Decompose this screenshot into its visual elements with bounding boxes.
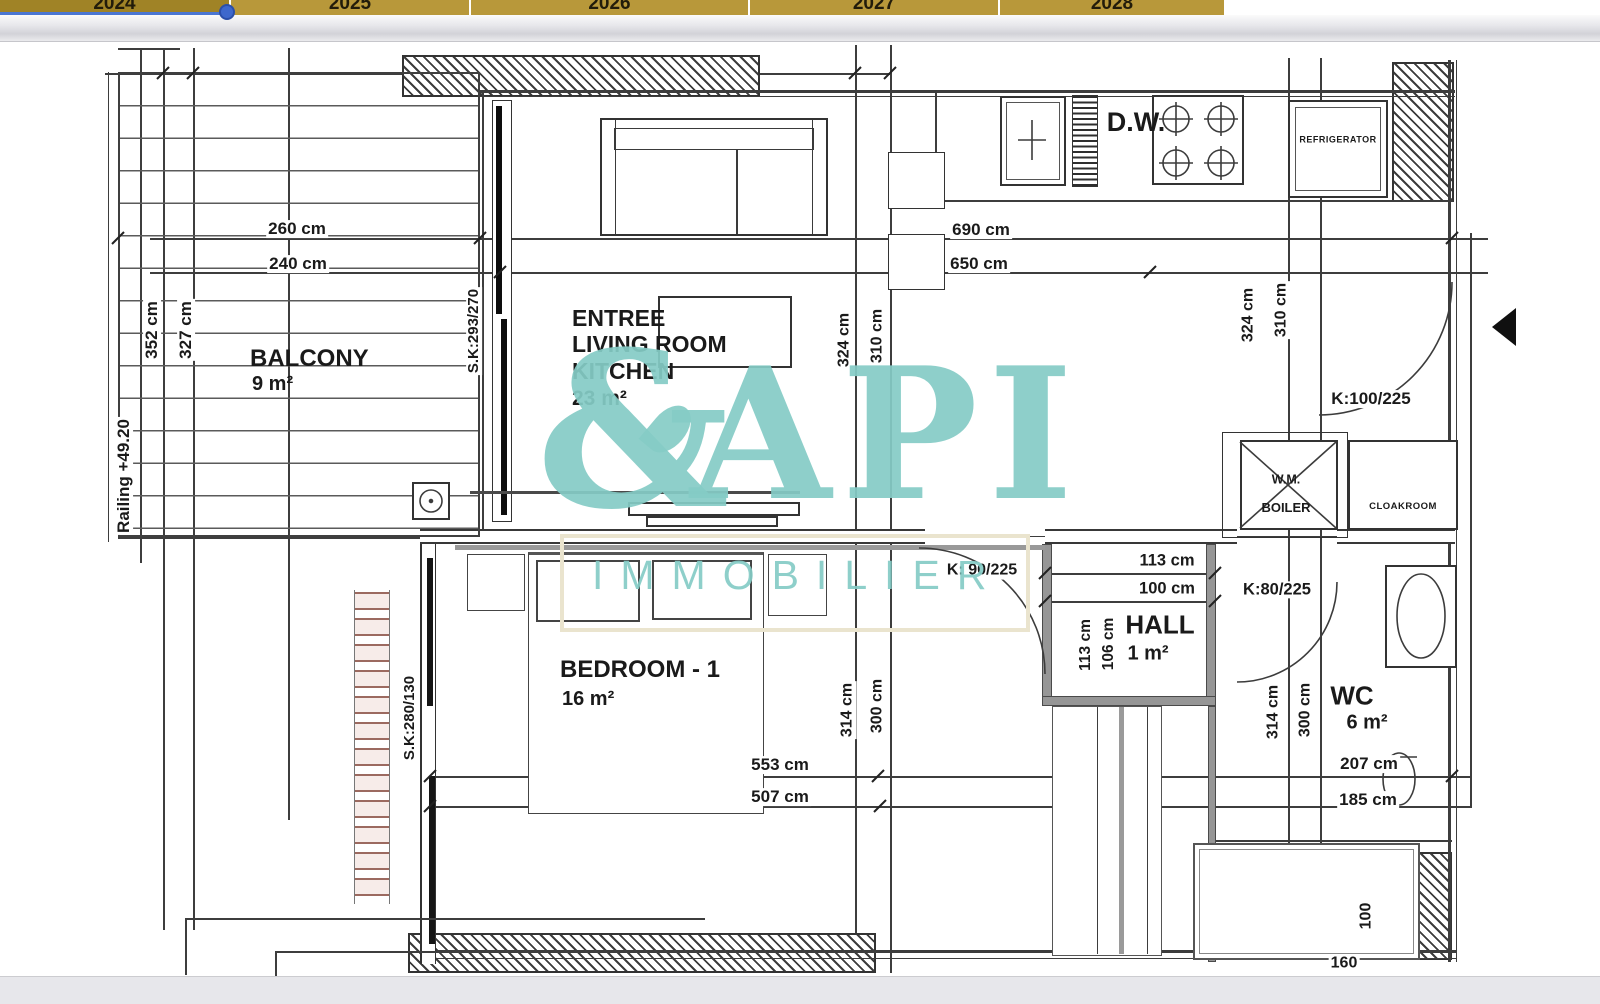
dim-living-right-outer: 324 cm	[1241, 286, 1258, 344]
boundary-step	[185, 918, 705, 920]
wall-top	[480, 90, 1455, 93]
dim-hall-depth-inner: 106 cm	[1101, 616, 1117, 673]
dim-bedroom-depth-inner: 300 cm	[870, 677, 887, 735]
timeline-progress-line	[0, 12, 228, 15]
shaft-line	[1147, 707, 1148, 954]
boiler-label: BOILER	[1261, 501, 1310, 515]
dim-wc-depth-inner: 300 cm	[1298, 681, 1315, 739]
dim-balcony-depth-inner: 327 cm	[177, 299, 195, 361]
sofa	[600, 118, 828, 236]
hall-wall-right	[1206, 544, 1216, 706]
refrigerator-label: REFRIGERATOR	[1299, 135, 1376, 144]
tab-year-2026[interactable]: 2026	[471, 0, 748, 15]
kitchen-sink	[1000, 96, 1066, 186]
wc-shower-divider	[1216, 840, 1452, 842]
room-label-wc: WC	[1330, 682, 1373, 709]
balcony-bottom-edge	[118, 537, 420, 539]
dim-shower-depth: 100	[1359, 901, 1376, 932]
dim-bedroom-width-outer: 553 cm	[749, 756, 811, 774]
watermark-logo-text: API	[690, 362, 1083, 508]
shaft-line	[1097, 707, 1098, 954]
room-area-wc: 6 m²	[1346, 713, 1387, 734]
dim-balcony-inner: 240 cm	[267, 255, 329, 273]
room-area-hall: 1 m²	[1127, 644, 1168, 665]
railing-level-label: Railing +49.20	[115, 417, 133, 535]
dim-bedroom-depth-outer: 314 cm	[840, 681, 857, 739]
hall-wall-bottom	[1042, 696, 1216, 706]
nightstand	[467, 554, 525, 611]
wall-divider-right	[1337, 529, 1455, 544]
dim-balcony-outer: 260 cm	[266, 220, 328, 238]
dim-shower-width: 160	[1329, 956, 1360, 973]
dim-line	[1045, 601, 1215, 603]
dim-hall-width-outer: 113 cm	[1137, 552, 1196, 569]
dim-line	[1470, 233, 1472, 808]
wc-sink-cabinet	[1385, 565, 1457, 668]
sofa-back	[614, 128, 814, 150]
duct-shaft	[1052, 706, 1162, 956]
balcony-drain	[412, 482, 450, 520]
radiator	[354, 590, 390, 904]
boundary-step	[275, 951, 277, 976]
sofa-seat-split	[736, 150, 738, 234]
wall-balcony-living	[482, 90, 484, 537]
balcony-railing	[108, 72, 109, 542]
shaft-gray-line	[1119, 707, 1124, 954]
floorplan-page: { "timeline": { "years": ["2024", "2025"…	[0, 0, 1600, 1003]
room-area-balcony: 9 m²	[252, 374, 293, 396]
dim-kitchen-outer: 690 cm	[950, 221, 1012, 239]
dim-line	[1045, 573, 1215, 575]
balcony-deck	[118, 72, 480, 537]
sofa-arm-left	[602, 120, 616, 234]
tab-year-2025[interactable]: 2025	[231, 0, 469, 15]
dim-kitchen-inner: 650 cm	[948, 255, 1010, 273]
dim-line	[118, 48, 180, 50]
bottom-status-strip	[0, 976, 1600, 1004]
tab-year-2027[interactable]: 2027	[750, 0, 998, 15]
room-area-bedroom: 16 m²	[562, 689, 614, 711]
tab-year-2028[interactable]: 2028	[1000, 0, 1224, 15]
boundary-step	[275, 951, 803, 953]
dim-balcony-depth-outer: 352 cm	[143, 299, 161, 361]
refrigerator	[1288, 100, 1388, 198]
wall-top-inner	[480, 96, 1455, 97]
wall-hatched-top-right	[1392, 62, 1454, 202]
kitchen-counter-edge	[935, 200, 1453, 202]
boundary-step	[185, 918, 187, 975]
cloakroom-box	[1348, 440, 1458, 530]
sink-inner	[1006, 102, 1060, 180]
timeline-slider-handle[interactable]	[219, 4, 235, 20]
refrigerator-inner	[1295, 107, 1381, 191]
wc-door-label: K:80/225	[1241, 581, 1313, 598]
room-label-bedroom: BEDROOM - 1	[560, 657, 720, 683]
washing-machine-label: W.M.	[1272, 473, 1300, 486]
hall-wall-left	[1042, 544, 1052, 706]
sofa-arm-right	[812, 120, 826, 234]
balcony-slider-label: S.K:293/270	[466, 287, 482, 375]
bedroom-window-glass	[427, 558, 433, 706]
room-label-balcony: BALCONY	[250, 346, 369, 372]
dishwasher-hatch	[1072, 95, 1098, 187]
dim-hall-width-inner: 100 cm	[1137, 580, 1197, 597]
kitchen-cabinet	[888, 234, 945, 290]
cloakroom-label: CLOAKROOM	[1369, 502, 1437, 512]
entry-door-label: K:100/225	[1329, 390, 1412, 408]
wall-hatched-bottom	[408, 933, 876, 973]
shower	[1193, 843, 1420, 960]
sliding-door-frame	[492, 100, 512, 522]
kitchen-cabinet	[888, 152, 945, 209]
dim-wc-width-inner: 185 cm	[1337, 791, 1399, 809]
dim-hall-depth-outer: 113 cm	[1078, 617, 1094, 673]
dishwasher-label: D.W.	[1107, 108, 1166, 136]
sliding-door-panel	[496, 106, 502, 314]
sliding-door-panel	[501, 319, 507, 515]
dim-wc-width-outer: 207 cm	[1338, 755, 1400, 773]
dim-bedroom-width-inner: 507 cm	[749, 788, 811, 806]
stove	[1152, 95, 1244, 185]
year-timeline-bar: 2024 2025 2026 2027 2028	[0, 0, 1600, 15]
toolbar-gradient-strip	[0, 15, 1600, 42]
dim-wc-depth-outer: 314 cm	[1266, 683, 1283, 741]
room-label-hall: HALL	[1125, 611, 1194, 638]
watermark-subtitle: IMMOBILIER	[592, 552, 1003, 599]
shower-inner	[1199, 849, 1414, 954]
dim-living-right-inner: 310 cm	[1274, 281, 1291, 339]
bedroom-window-label: S.K:280/130	[402, 674, 418, 762]
